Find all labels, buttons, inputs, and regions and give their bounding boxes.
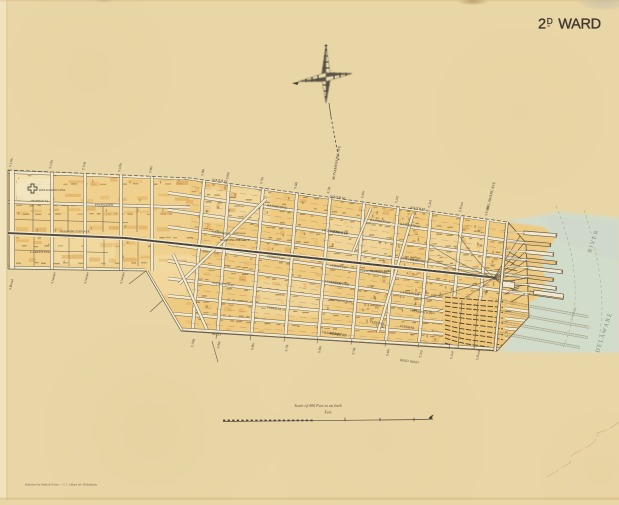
svg-text:WARD: WARD xyxy=(558,17,601,33)
svg-text:Feet: Feet xyxy=(323,410,332,415)
svg-text:WASHINGTON AVE: WASHINGTON AVE xyxy=(360,269,390,273)
svg-text:Published by Smith & Wistar —: Published by Smith & Wistar — J. C. Sidn… xyxy=(25,483,98,487)
svg-text:CARPENTER: CARPENTER xyxy=(30,250,51,254)
svg-text:Scale of 400 Feet to an Inch: Scale of 400 Feet to an Inch xyxy=(294,403,341,408)
svg-text:WASHINGTON AVE: WASHINGTON AVE xyxy=(60,230,90,234)
svg-text:D: D xyxy=(547,16,553,26)
svg-text:RONALDSON CEM.: RONALDSON CEM. xyxy=(39,188,66,192)
svg-text:FITZWATER: FITZWATER xyxy=(95,203,114,207)
svg-text:WASHINGTON AVE: WASHINGTON AVE xyxy=(220,238,250,242)
svg-text:2: 2 xyxy=(538,17,546,33)
